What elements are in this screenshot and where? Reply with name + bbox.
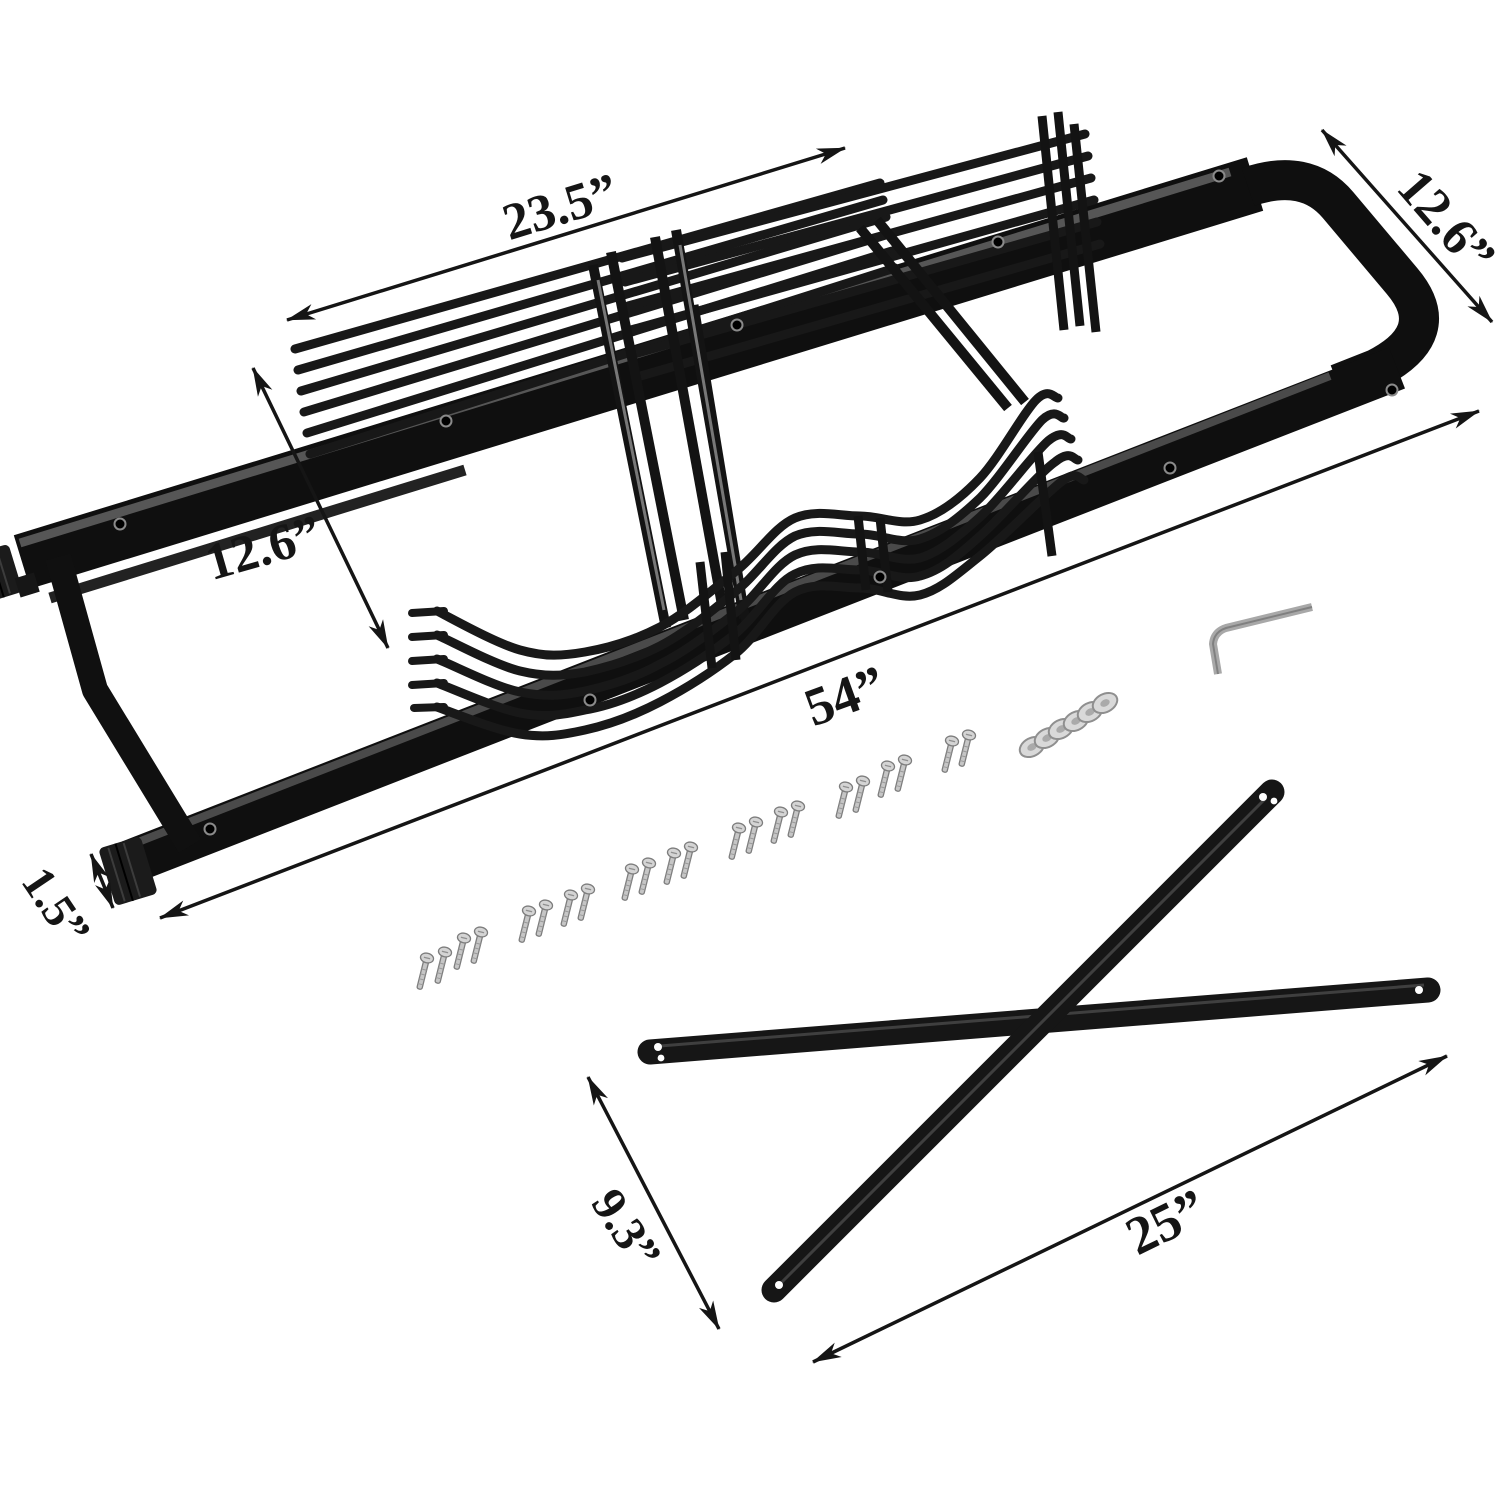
svg-text:23.5”: 23.5” [496, 163, 625, 252]
svg-text:25”: 25” [1116, 1177, 1215, 1266]
svg-text:1.5”: 1.5” [11, 858, 100, 955]
svg-text:9.3”: 9.3” [581, 1180, 671, 1279]
